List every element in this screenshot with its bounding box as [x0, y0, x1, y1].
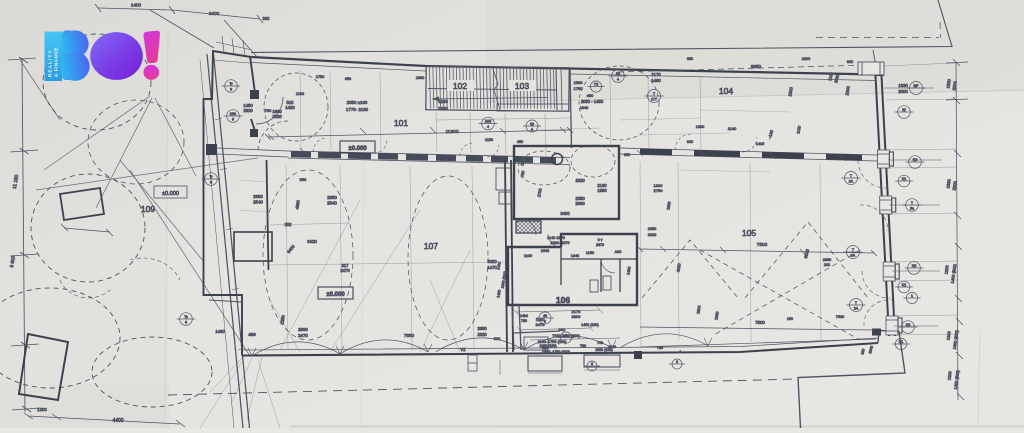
svg-text:450: 450	[587, 93, 594, 98]
svg-text:K6: K6	[913, 158, 917, 162]
svg-text:3420: 3420	[307, 239, 317, 244]
svg-text:2A: 2A	[854, 307, 859, 311]
svg-text:2050 - 1450: 2050 - 1450	[581, 99, 604, 104]
svg-text:1150: 1150	[485, 138, 493, 142]
svg-text:2650: 2650	[477, 326, 487, 331]
svg-text:NP: NP	[914, 84, 920, 88]
svg-text:1960: 1960	[416, 76, 424, 80]
svg-text:6: 6	[232, 118, 234, 122]
svg-text:2370: 2370	[596, 243, 604, 247]
svg-text:2990: 2990	[298, 327, 308, 332]
svg-text:1840- 1750 (200): 1840- 1750 (200)	[542, 350, 570, 354]
svg-text:450: 450	[517, 140, 523, 144]
svg-text:1460: 1460	[215, 329, 225, 334]
svg-text:2050 ±180: 2050 ±180	[347, 100, 368, 105]
svg-text:109: 109	[141, 204, 155, 214]
svg-text:2a: 2a	[910, 207, 914, 211]
svg-text:4: 4	[617, 78, 619, 82]
svg-text:7560: 7560	[836, 315, 844, 319]
svg-text:650: 650	[687, 57, 693, 61]
svg-text:3400: 3400	[209, 11, 220, 16]
svg-text:4: 4	[531, 128, 533, 132]
svg-text:3240: 3240	[438, 99, 448, 104]
svg-text:4: 4	[487, 125, 489, 129]
svg-text:2470: 2470	[298, 333, 308, 338]
svg-text:2320: 2320	[272, 114, 282, 119]
svg-text:1340: 1340	[571, 254, 579, 258]
svg-text:1450 (150): 1450 (150)	[581, 323, 598, 327]
svg-text:1460: 1460	[651, 78, 661, 83]
svg-text:1330: 1330	[898, 83, 908, 88]
svg-text:7650: 7650	[404, 333, 415, 338]
svg-text:2320: 2320	[648, 233, 656, 237]
svg-text:200: 200	[824, 263, 830, 267]
svg-text:2690: 2690	[253, 194, 263, 199]
svg-text:REALITY: REALITY	[48, 49, 53, 77]
svg-text:950: 950	[345, 77, 351, 81]
svg-text:2200: 2200	[802, 57, 810, 61]
svg-text:2960: 2960	[575, 201, 585, 206]
svg-text:150: 150	[787, 317, 793, 321]
svg-text:2140: 2140	[728, 127, 736, 131]
svg-text:4400: 4400	[112, 418, 123, 424]
svg-text:6: 6	[591, 362, 593, 366]
svg-text:A06: A06	[485, 119, 491, 123]
svg-text:2750: 2750	[654, 188, 664, 193]
svg-text:1400: 1400	[131, 3, 142, 8]
svg-text:900: 900	[847, 60, 853, 64]
svg-text:600: 600	[494, 336, 501, 341]
svg-text:1520: 1520	[575, 178, 585, 183]
svg-text:1100: 1100	[524, 254, 532, 258]
svg-text:3020: 3020	[487, 259, 497, 264]
svg-text:A30: A30	[615, 250, 622, 254]
svg-text:2470: 2470	[340, 268, 350, 273]
svg-text:K1: K1	[902, 177, 906, 181]
svg-text:2540: 2540	[253, 200, 263, 205]
svg-text:2A: 2A	[849, 180, 854, 184]
svg-text:6: 6	[185, 321, 187, 325]
svg-text:2950: 2950	[327, 195, 337, 200]
svg-text:2460: 2460	[438, 106, 448, 111]
svg-text:2320: 2320	[477, 332, 487, 337]
svg-text:1150: 1150	[586, 251, 594, 255]
svg-text:7500: 7500	[755, 320, 765, 325]
svg-text:650: 650	[624, 153, 630, 157]
svg-text:2640: 2640	[608, 345, 616, 349]
svg-text:2650: 2650	[648, 227, 656, 231]
svg-text:1200: 1200	[37, 407, 47, 412]
svg-text:3: 3	[676, 360, 678, 364]
svg-text:2950: 2950	[823, 258, 831, 262]
svg-text:1150 (150): 1150 (150)	[539, 344, 556, 348]
svg-text:1p: 1p	[530, 122, 534, 126]
svg-text:VZ: VZ	[460, 347, 466, 352]
svg-text:1770- 2160: 1770- 2160	[346, 107, 369, 112]
svg-text:K1: K1	[899, 340, 903, 344]
svg-text:4: 4	[565, 333, 567, 337]
svg-text:K6: K6	[912, 264, 916, 268]
svg-text:6: 6	[230, 88, 232, 92]
svg-text:1415: 1415	[756, 142, 764, 146]
svg-text:1420: 1420	[285, 105, 295, 110]
svg-text:550: 550	[300, 177, 307, 182]
svg-text:15A: 15A	[230, 112, 237, 116]
svg-text:400: 400	[248, 332, 256, 337]
svg-text:Ts: Ts	[184, 315, 188, 319]
svg-text:K1: K1	[902, 283, 906, 287]
svg-text:6: 6	[210, 181, 212, 185]
svg-text:1840: 1840	[580, 106, 588, 110]
svg-text:1360: 1360	[696, 125, 704, 129]
svg-text:750: 750	[521, 319, 527, 323]
svg-text:900: 900	[687, 140, 693, 144]
svg-text:740: 740	[597, 341, 603, 345]
svg-text:101: 101	[394, 118, 408, 128]
svg-text:2320: 2320	[243, 108, 253, 113]
svg-text:±0.000: ±0.000	[162, 191, 179, 197]
svg-text:2A: 2A	[851, 254, 856, 258]
svg-text:3300: 3300	[572, 314, 582, 319]
svg-text:4: 4	[679, 350, 681, 354]
svg-text:1560: 1560	[574, 80, 584, 85]
svg-text:106: 106	[556, 295, 570, 305]
svg-text:14b0: 14b0	[520, 314, 528, 318]
svg-text:102: 102	[453, 81, 467, 91]
svg-text:1750: 1750	[316, 75, 324, 79]
svg-text:750: 750	[265, 108, 272, 113]
svg-text:& FINANCE: & FINANCE	[54, 47, 59, 77]
svg-text:105: 105	[742, 228, 756, 238]
svg-text:8650: 8650	[751, 64, 762, 69]
svg-text:b: b	[544, 320, 546, 324]
svg-text:3400: 3400	[560, 211, 570, 216]
svg-text:K6: K6	[906, 323, 910, 327]
svg-text:177: 177	[651, 98, 657, 102]
svg-text:104: 104	[719, 86, 733, 96]
svg-text:1190: 1190	[296, 92, 304, 96]
svg-text:300: 300	[263, 16, 271, 21]
svg-text:1: 1	[911, 294, 913, 298]
svg-text:107: 107	[424, 241, 438, 251]
svg-text:103: 103	[515, 81, 529, 91]
svg-text:±0.000: ±0.000	[348, 146, 367, 152]
svg-text:48: 48	[543, 314, 547, 318]
svg-text:0 v: 0 v	[598, 238, 603, 242]
svg-text:1750: 1750	[574, 86, 584, 91]
svg-text:7500: 7500	[757, 242, 768, 248]
svg-text:2000: 2000	[898, 89, 908, 94]
svg-text:11900: 11900	[446, 129, 459, 135]
svg-text:Y3: Y3	[594, 82, 598, 86]
svg-text:1540: 1540	[541, 249, 549, 253]
svg-text:2540: 2540	[327, 201, 337, 206]
svg-text:1950: 1950	[597, 188, 607, 193]
svg-text:±0.000: ±0.000	[326, 292, 345, 298]
